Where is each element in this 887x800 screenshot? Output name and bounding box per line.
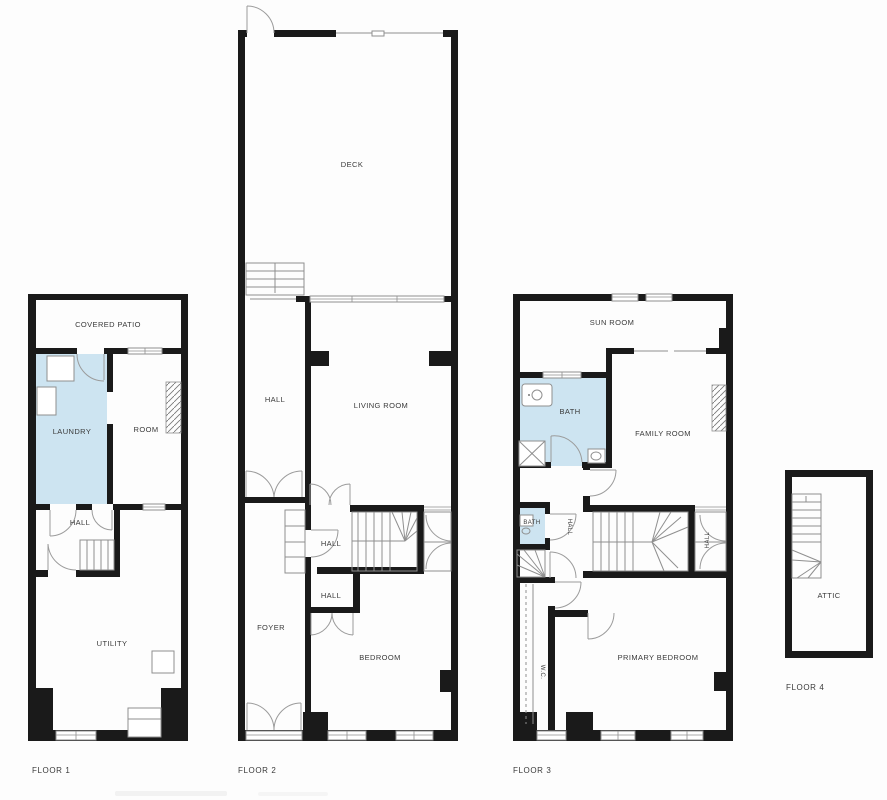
floor-1-plan: COVERED PATIO LAUNDRY ROOM HALL UTILITY bbox=[20, 288, 196, 750]
floor-3-caption: FLOOR 3 bbox=[513, 766, 551, 775]
room-label-hall-left: HALL bbox=[566, 519, 572, 536]
floor-1-caption: FLOOR 1 bbox=[32, 766, 70, 775]
chimney-hatch-icon bbox=[166, 382, 181, 433]
room-label-room: ROOM bbox=[134, 425, 159, 434]
room-label-deck: DECK bbox=[341, 160, 363, 169]
floor3-windows bbox=[537, 294, 726, 740]
floor4-stairs bbox=[792, 494, 821, 578]
room-label-family-room: FAMILY ROOM bbox=[635, 429, 691, 438]
fireplace-hatch-icon bbox=[712, 385, 726, 431]
room-label-attic: ATTIC bbox=[817, 591, 840, 600]
floor-4-caption: FLOOR 4 bbox=[786, 683, 824, 692]
room-label-bedroom: BEDROOM bbox=[359, 653, 401, 662]
room-label-hall-upper: HALL bbox=[265, 395, 285, 404]
floor3-doors bbox=[550, 436, 726, 639]
floor1-stairs bbox=[80, 540, 114, 570]
room-label-bath: BATH bbox=[559, 407, 580, 416]
scan-smudge bbox=[115, 791, 227, 796]
floor-plan-sheet: COVERED PATIO LAUNDRY ROOM HALL UTILITY bbox=[0, 0, 887, 800]
room-label-hall-stairs: HALL bbox=[321, 539, 341, 548]
sink-icon bbox=[522, 384, 552, 406]
room-label-covered-patio: COVERED PATIO bbox=[75, 320, 141, 329]
room-label-hall-f1: HALL bbox=[70, 518, 90, 527]
floor-2-plan: DECK HALL LIVING ROOM HALL HALL FOYER BE… bbox=[228, 0, 464, 748]
dryer-icon bbox=[37, 387, 56, 415]
cabinet-icon bbox=[128, 708, 161, 737]
room-label-bath-small: BATH bbox=[523, 520, 540, 526]
scan-smudge-2 bbox=[258, 792, 328, 796]
room-label-laundry: LAUNDRY bbox=[53, 427, 92, 436]
sink-tap-icon bbox=[528, 394, 530, 396]
floor-3-plan: SUN ROOM BATH FAMILY ROOM BATH HALL HALL… bbox=[505, 288, 741, 750]
floor-2-caption: FLOOR 2 bbox=[238, 766, 276, 775]
room-label-wc: W.C. bbox=[539, 665, 545, 680]
floor2-doors bbox=[246, 6, 451, 730]
room-label-sun-room: SUN ROOM bbox=[590, 318, 634, 327]
room-label-foyer: FOYER bbox=[257, 623, 285, 632]
room-label-hall-right: HALL bbox=[705, 531, 711, 548]
room-label-living-room: LIVING ROOM bbox=[354, 401, 408, 410]
room-label-utility: UTILITY bbox=[97, 639, 128, 648]
floor4-walls bbox=[785, 470, 873, 658]
room-label-primary-bedroom: PRIMARY BEDROOM bbox=[618, 653, 699, 662]
floor4-room-labels: ATTIC bbox=[817, 591, 840, 600]
room-label-hall-lower: HALL bbox=[321, 591, 341, 600]
utility-fixture-icon bbox=[152, 651, 174, 673]
washer-icon bbox=[47, 356, 74, 381]
floor2-room-labels: DECK HALL LIVING ROOM HALL HALL FOYER BE… bbox=[257, 160, 408, 662]
floor-4-plan: ATTIC bbox=[775, 460, 885, 672]
